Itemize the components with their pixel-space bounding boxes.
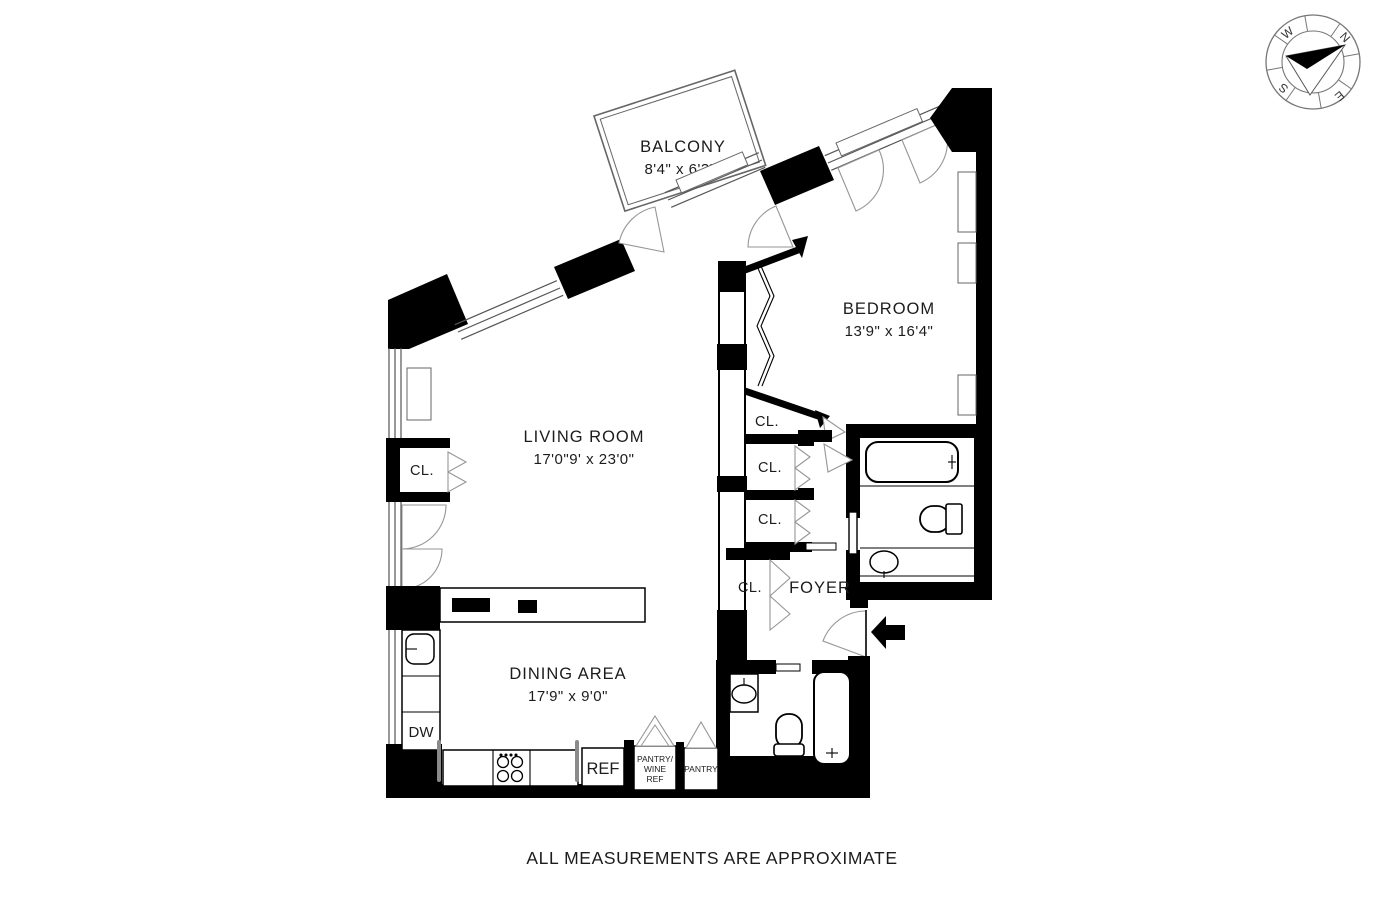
- living-room-name: LIVING ROOM: [523, 428, 644, 446]
- compass-letter-s: S: [1276, 80, 1291, 96]
- zigzag-partition-2: [761, 266, 774, 386]
- pantry-wine-label-1: PANTRY/: [637, 754, 674, 764]
- bath2-toilet-base: [774, 744, 804, 756]
- window-unit-2: [958, 243, 976, 283]
- wall-west-chunk: [386, 586, 440, 630]
- bath2-toilet-bowl: [776, 714, 802, 748]
- compass-rose: N W S E: [1266, 15, 1360, 109]
- peninsula-inset-2: [518, 600, 537, 613]
- wall-cl4-top: [726, 548, 790, 560]
- radiator-box: [407, 368, 431, 420]
- wall-bedroom-south: [848, 424, 992, 438]
- wall-diag-top: [745, 250, 798, 270]
- wall-entry-top-stub: [850, 590, 868, 608]
- bedroom-window-swing-1: [838, 150, 883, 211]
- counter-handle-1: [437, 740, 441, 782]
- living-room-dims: 17'0"9' x 23'0": [534, 451, 635, 468]
- closet-2-label: CL.: [758, 460, 782, 476]
- wcl-bifold-1: [448, 452, 466, 472]
- wall-nw-corner: [388, 274, 468, 349]
- pantry-label: PANTRY: [684, 764, 718, 774]
- cl4-bifold-2: [770, 596, 790, 630]
- dining-area-dims: 17'9" x 9'0": [528, 688, 608, 705]
- bedroom-name: BEDROOM: [843, 300, 935, 318]
- wall-mbath-west-upper: [846, 424, 860, 518]
- closet-4-label: CL.: [738, 580, 762, 596]
- mbath-sink: [870, 551, 898, 573]
- pantry-wine-label-2: WINE: [644, 764, 667, 774]
- cl3-bifold-2: [795, 522, 810, 544]
- counter-handle-2: [575, 740, 579, 782]
- closet-1-label: CL.: [755, 414, 779, 430]
- floor-plan-page: N W S E BALCONY 8'4" x 6'3": [0, 0, 1376, 918]
- cl4-bifold-1: [770, 560, 790, 596]
- cl3-bifold-1: [795, 500, 810, 522]
- center-column-closets: CL. CL. CL. CL.: [717, 236, 852, 662]
- compass-letter-e: E: [1332, 88, 1347, 104]
- dining-area-name: DINING AREA: [509, 665, 626, 683]
- window-band-3: [825, 106, 948, 211]
- bath2-sink: [732, 685, 756, 703]
- pantry-door-swing: [686, 722, 716, 748]
- footer-disclaimer: ALL MEASUREMENTS ARE APPROXIMATE: [526, 848, 897, 868]
- master-bathroom: [846, 424, 992, 600]
- closet-3-label: CL.: [758, 512, 782, 528]
- passage-pocket-door: [806, 543, 836, 550]
- window-band-1: [455, 281, 563, 340]
- compass-letter-w: W: [1279, 23, 1297, 41]
- wall-mbath-east: [974, 438, 992, 600]
- cl2-bifold-2: [795, 468, 810, 490]
- window-band-west-2: [389, 502, 401, 588]
- wall-balcony-left: [554, 239, 635, 299]
- wall-bedroom-east: [976, 140, 992, 432]
- west-window-swing-2: [402, 549, 442, 589]
- second-bathroom: [716, 660, 856, 798]
- cl2-bifold-1: [795, 446, 810, 468]
- balcony-name: BALCONY: [640, 138, 726, 156]
- wall-mid-chunk: [760, 146, 834, 205]
- window-band-west-1: [389, 348, 401, 440]
- wall-bath2-west: [716, 660, 730, 760]
- zigzag-partition: [757, 266, 770, 386]
- west-window-swing-1: [402, 505, 446, 549]
- wall-pantry-div-2: [676, 742, 684, 790]
- entry-arrow-icon: [871, 616, 905, 649]
- refrigerator-label: REF: [587, 760, 620, 778]
- entry-door-swing: [823, 611, 866, 657]
- column-strip: [719, 262, 745, 632]
- wcl-bifold-2: [448, 472, 466, 492]
- dishwasher-label: DW: [409, 724, 435, 741]
- bath2-pocket-door: [776, 664, 800, 671]
- window-unit-3: [958, 375, 976, 415]
- room-labels: LIVING ROOM 17'0"9' x 23'0" DINING AREA …: [509, 428, 644, 705]
- wall-pantry-div-1: [624, 740, 634, 790]
- balcony-door-swing: [619, 207, 664, 252]
- mbath-toilet-tank: [946, 504, 962, 534]
- wall-mbath-south: [858, 582, 992, 600]
- peninsula-inset-1: [452, 598, 490, 612]
- pantry-wine-door-swing: [636, 716, 674, 746]
- wall-wcl-west: [386, 438, 400, 502]
- mbath-pocket-door: [849, 512, 857, 554]
- compass-letter-n: N: [1337, 29, 1353, 45]
- window-band-west-3: [389, 630, 395, 744]
- pantry-wine-label-3: REF: [647, 774, 664, 784]
- foyer-name: FOYER: [789, 579, 851, 597]
- bedroom-door-swing: [748, 206, 793, 247]
- bedroom-dims: 13'9" x 16'4": [845, 323, 934, 340]
- window-unit-1: [958, 172, 976, 232]
- mbath-bathtub: [866, 442, 958, 482]
- floor-plan: N W S E BALCONY 8'4" x 6'3": [0, 0, 1376, 918]
- closet-west-label: CL.: [410, 463, 434, 479]
